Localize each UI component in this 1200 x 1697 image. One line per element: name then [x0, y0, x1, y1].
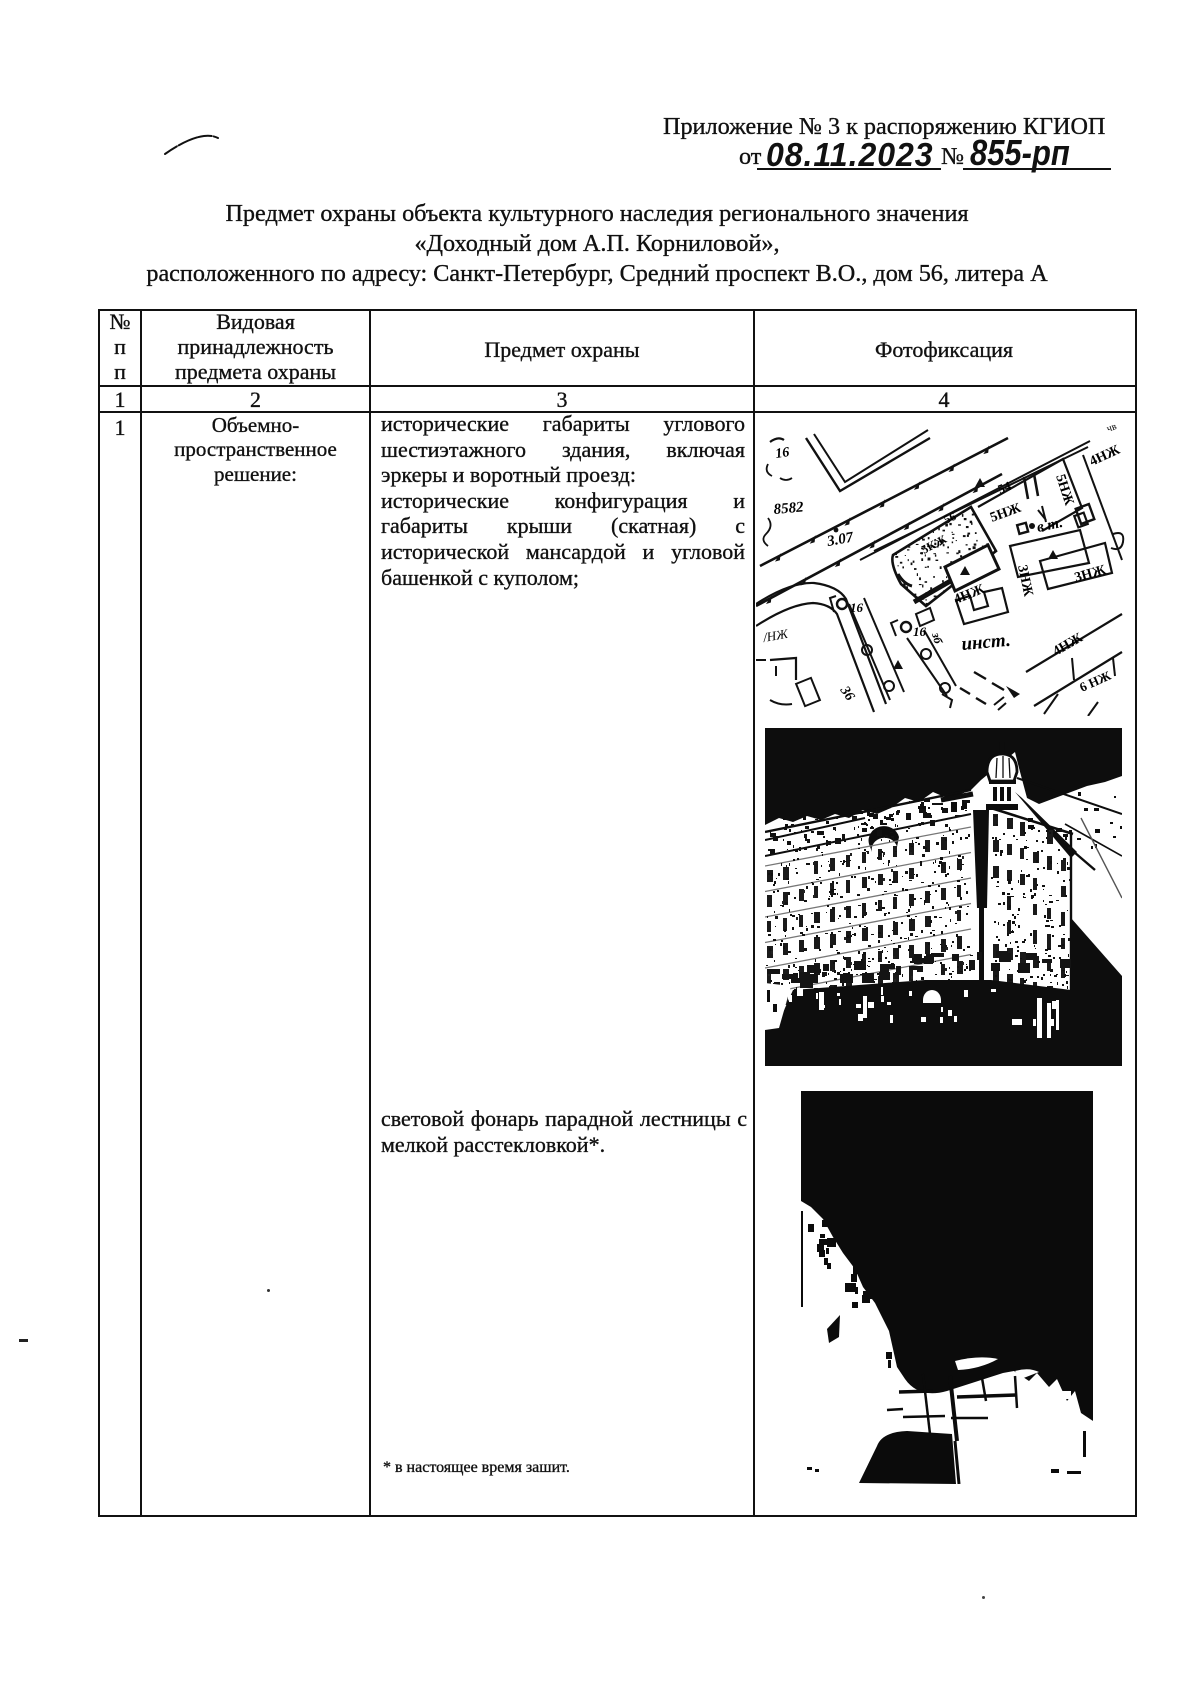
svg-text:в т.: в т. — [1036, 515, 1065, 536]
svg-text:8582: 8582 — [773, 499, 805, 518]
svg-text:4НЖ: 4НЖ — [1051, 631, 1086, 660]
svg-text:3НЖ: 3НЖ — [1014, 564, 1035, 598]
svg-text:4НЖ: 4НЖ — [1087, 443, 1122, 470]
svg-text:/НЖ: /НЖ — [761, 626, 790, 645]
svg-text:54: 54 — [996, 478, 1014, 497]
svg-text:36: 36 — [836, 683, 857, 704]
svg-text:5НЖ: 5НЖ — [1052, 473, 1076, 508]
svg-text:3.07: 3.07 — [825, 530, 855, 551]
svg-text:5НЖ: 5НЖ — [988, 501, 1023, 526]
svg-text:чв: чв — [1105, 421, 1118, 435]
svg-text:6 НЖ: 6 НЖ — [1077, 668, 1113, 695]
svg-text:инст.: инст. — [961, 630, 1012, 655]
svg-text:16: 16 — [850, 600, 864, 615]
svg-text:16: 16 — [774, 445, 790, 462]
